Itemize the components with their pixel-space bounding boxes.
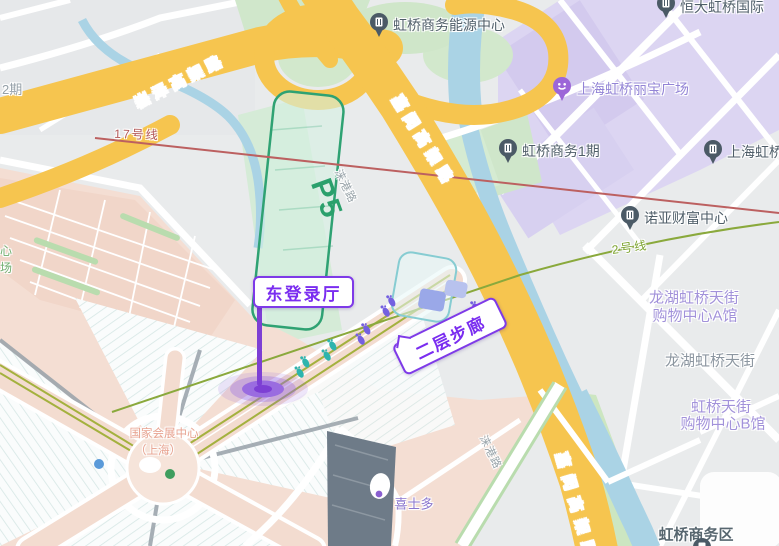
building-pin-icon[interactable] [692,537,712,546]
dark-building [327,431,396,546]
footprints-icon [352,323,376,347]
building-pin-icon[interactable] [369,12,389,39]
building-pin-icon[interactable] [703,139,723,166]
location-marker[interactable] [215,360,315,410]
cstore-dot-icon[interactable] [374,489,384,499]
marker-pole [257,302,262,386]
callout-pointer [396,335,411,350]
building-pin-icon[interactable] [620,205,640,232]
footprints-icon [318,339,342,363]
building-pin-icon[interactable] [498,138,518,165]
water-feature-icon [94,459,104,469]
footprints-icon [377,295,401,319]
map-canvas[interactable]: 崧泽高架路 嘉闵高架路 嘉闵高架路 涞港路 涞港路 17号线 2号线 P5 2期… [0,0,779,546]
east-login-hall-callout[interactable]: 东登录厅 [253,276,354,308]
building-pin-icon[interactable] [656,0,676,20]
east-login-hall-text: 东登录厅 [266,280,342,305]
tree-icon [165,469,175,479]
base-map-graphics [0,0,779,546]
mall-pin-icon[interactable] [552,76,572,103]
